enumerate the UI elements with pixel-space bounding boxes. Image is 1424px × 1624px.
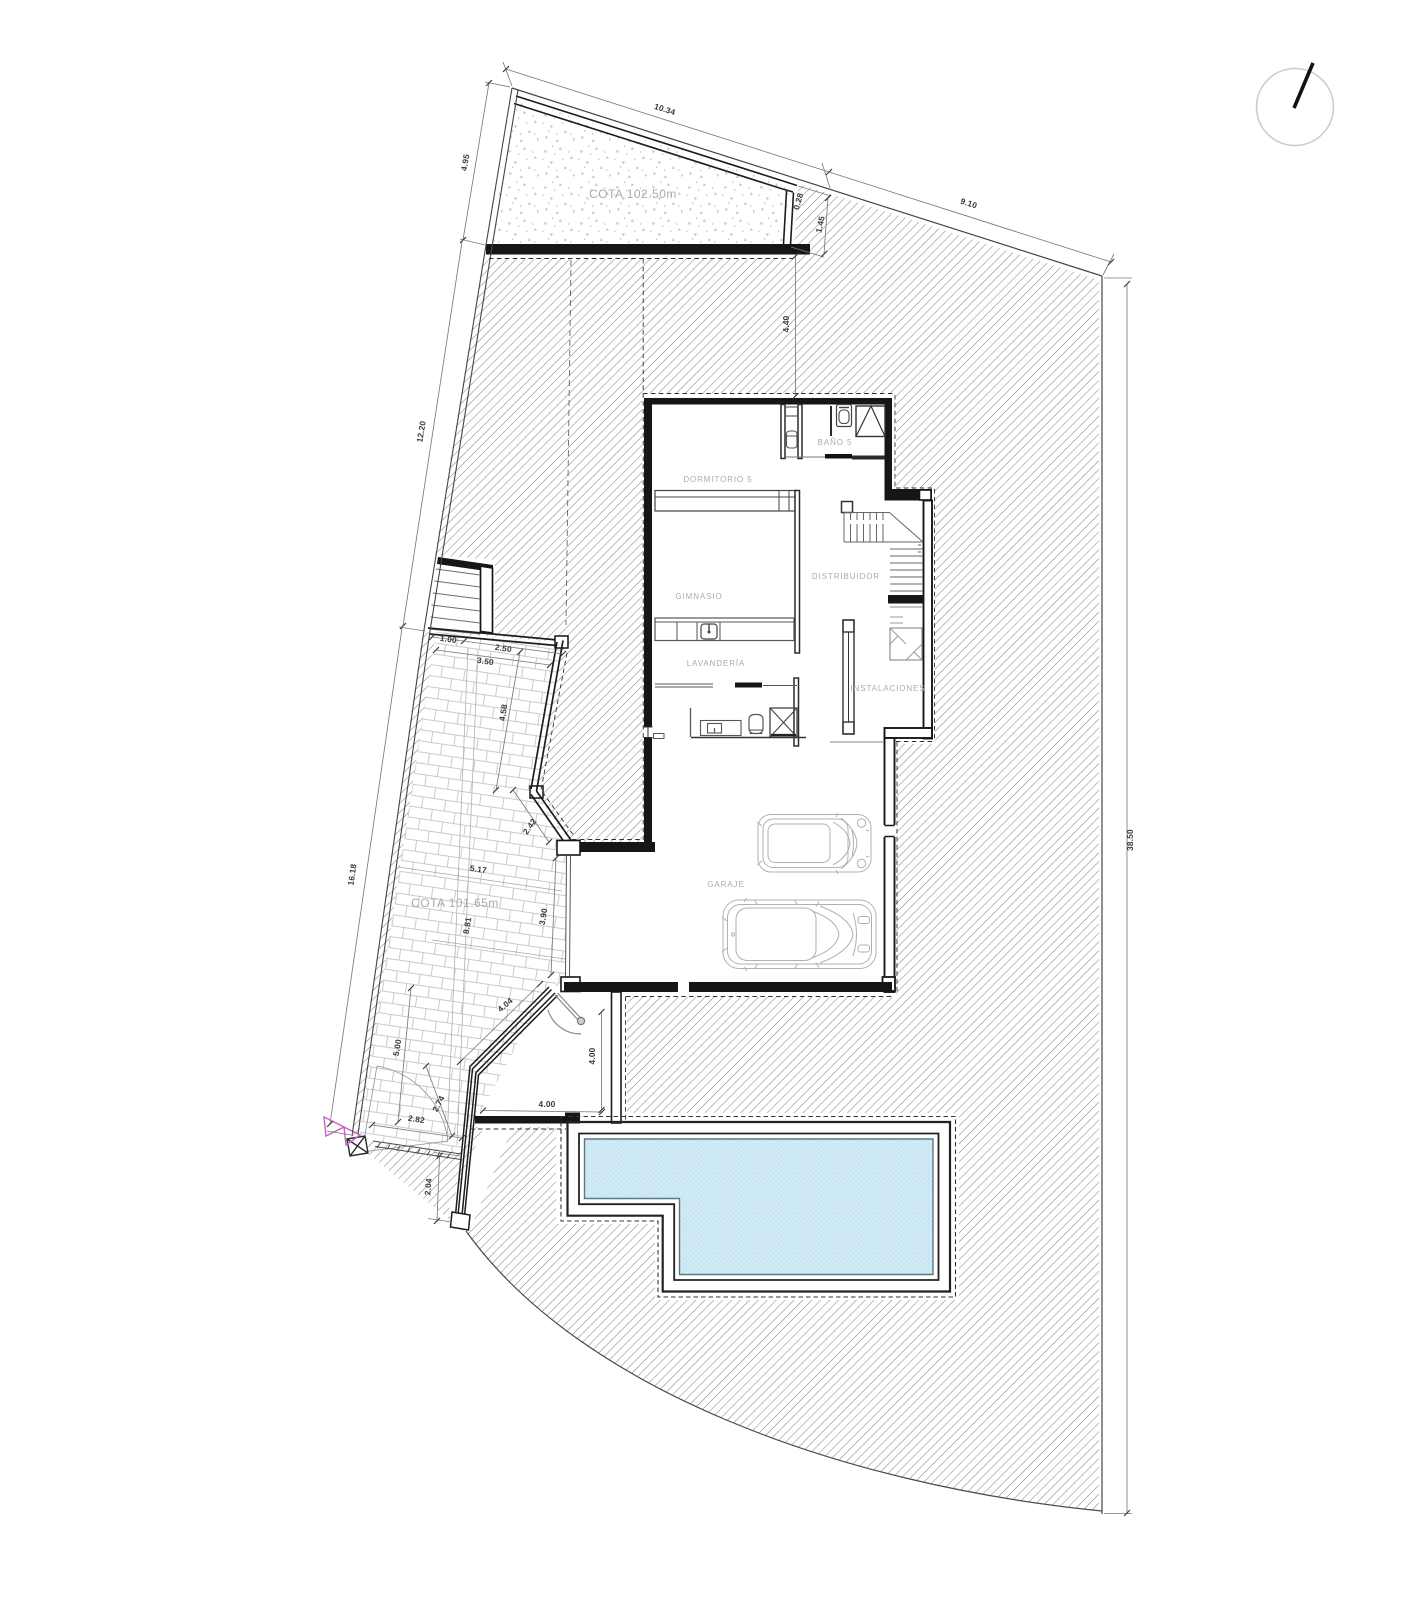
svg-text:16.18: 16.18: [345, 863, 358, 886]
svg-text:INSTALACIONES: INSTALACIONES: [850, 684, 925, 693]
svg-text:2.04: 2.04: [422, 1178, 433, 1196]
svg-text:COTA 101.65m: COTA 101.65m: [411, 896, 499, 910]
svg-text:GIMNASIO: GIMNASIO: [675, 592, 722, 601]
svg-text:4.40: 4.40: [781, 315, 791, 332]
svg-text:DISTRIBUIDOR: DISTRIBUIDOR: [812, 572, 880, 581]
svg-text:9.10: 9.10: [959, 196, 978, 211]
svg-text:4.00: 4.00: [587, 1047, 597, 1064]
svg-text:4.00: 4.00: [539, 1099, 556, 1109]
svg-text:4.95: 4.95: [459, 153, 472, 172]
svg-text:12.20: 12.20: [414, 420, 427, 443]
svg-text:BAÑO 5: BAÑO 5: [818, 438, 853, 447]
svg-text:COTA 102.50m: COTA 102.50m: [589, 187, 677, 201]
svg-text:DORMITORIO 5: DORMITORIO 5: [683, 475, 752, 484]
svg-text:38.50: 38.50: [1125, 829, 1135, 851]
svg-text:10.34: 10.34: [653, 101, 677, 117]
svg-text:LAVANDERÍA: LAVANDERÍA: [687, 659, 746, 668]
svg-text:GARAJE: GARAJE: [707, 880, 744, 889]
